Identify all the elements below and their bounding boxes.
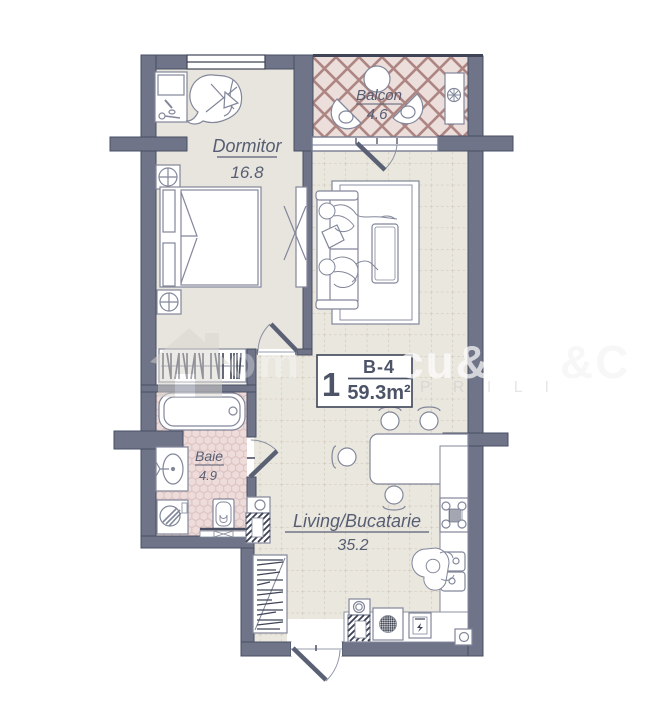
svg-text:16.8: 16.8 <box>230 163 264 182</box>
svg-text:Balcon: Balcon <box>356 87 402 104</box>
svg-text:P R I L I: P R I L I <box>420 379 558 396</box>
svg-text:Baie: Baie <box>195 448 223 464</box>
svg-text:4.6: 4.6 <box>367 106 389 123</box>
svg-text:4.9: 4.9 <box>199 468 217 483</box>
svg-text:&C: &C <box>560 336 630 388</box>
svg-text:35.2: 35.2 <box>337 537 368 554</box>
svg-text:Living/Bucatarie: Living/Bucatarie <box>293 511 421 531</box>
svg-text:Dormitor: Dormitor <box>212 136 282 156</box>
svg-text:1: 1 <box>322 366 340 403</box>
svg-text:om: om <box>228 336 301 388</box>
svg-text:B-4: B-4 <box>363 357 395 377</box>
